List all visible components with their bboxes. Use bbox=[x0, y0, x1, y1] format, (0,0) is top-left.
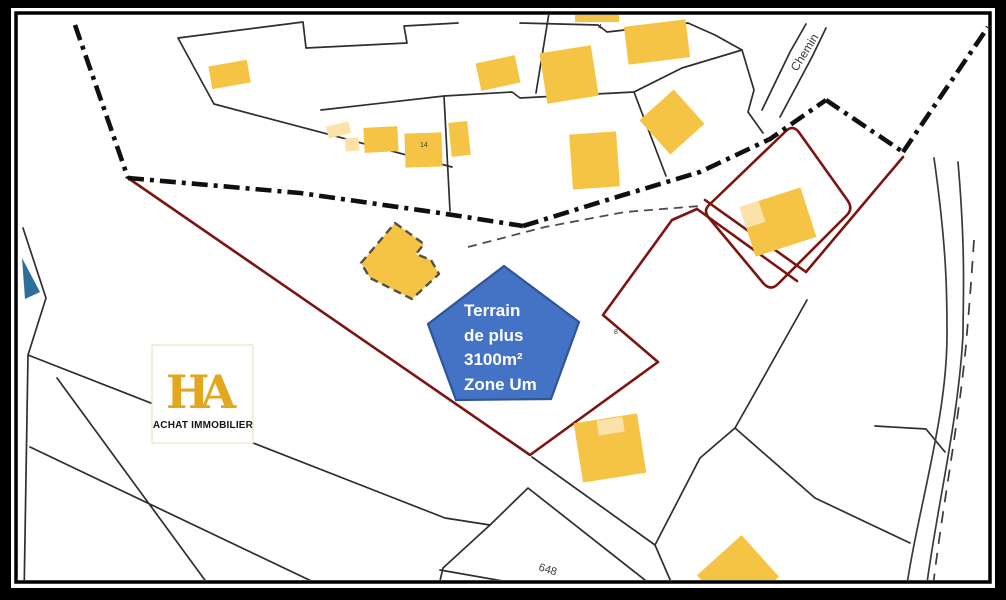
pentagon-line-4: Zone Um bbox=[464, 375, 537, 394]
pentagon-line-2: de plus bbox=[464, 326, 524, 345]
cadastral-map: Chemin 648 14 4 8 Terrain de plus 3100m²… bbox=[0, 0, 1006, 600]
building bbox=[569, 131, 620, 189]
parcel-8-label: 8 bbox=[614, 329, 618, 336]
logo-monogram: HA bbox=[166, 365, 237, 419]
building bbox=[624, 19, 690, 64]
building-14-label: 14 bbox=[420, 142, 428, 149]
logo-subtitle: ACHAT IMMOBILIER bbox=[153, 420, 254, 431]
building-annex bbox=[345, 137, 360, 151]
agency-logo: HA ACHAT IMMOBILIER bbox=[152, 345, 254, 443]
building bbox=[363, 126, 398, 153]
cadastral-map-svg: Chemin 648 14 4 8 Terrain de plus 3100m²… bbox=[0, 0, 1006, 600]
building bbox=[539, 45, 598, 104]
pentagon-line-1: Terrain bbox=[464, 301, 520, 320]
parcel-4-label: 4 bbox=[598, 24, 602, 31]
building bbox=[448, 121, 470, 157]
pentagon-line-3: 3100m² bbox=[464, 350, 523, 369]
building bbox=[404, 132, 442, 167]
